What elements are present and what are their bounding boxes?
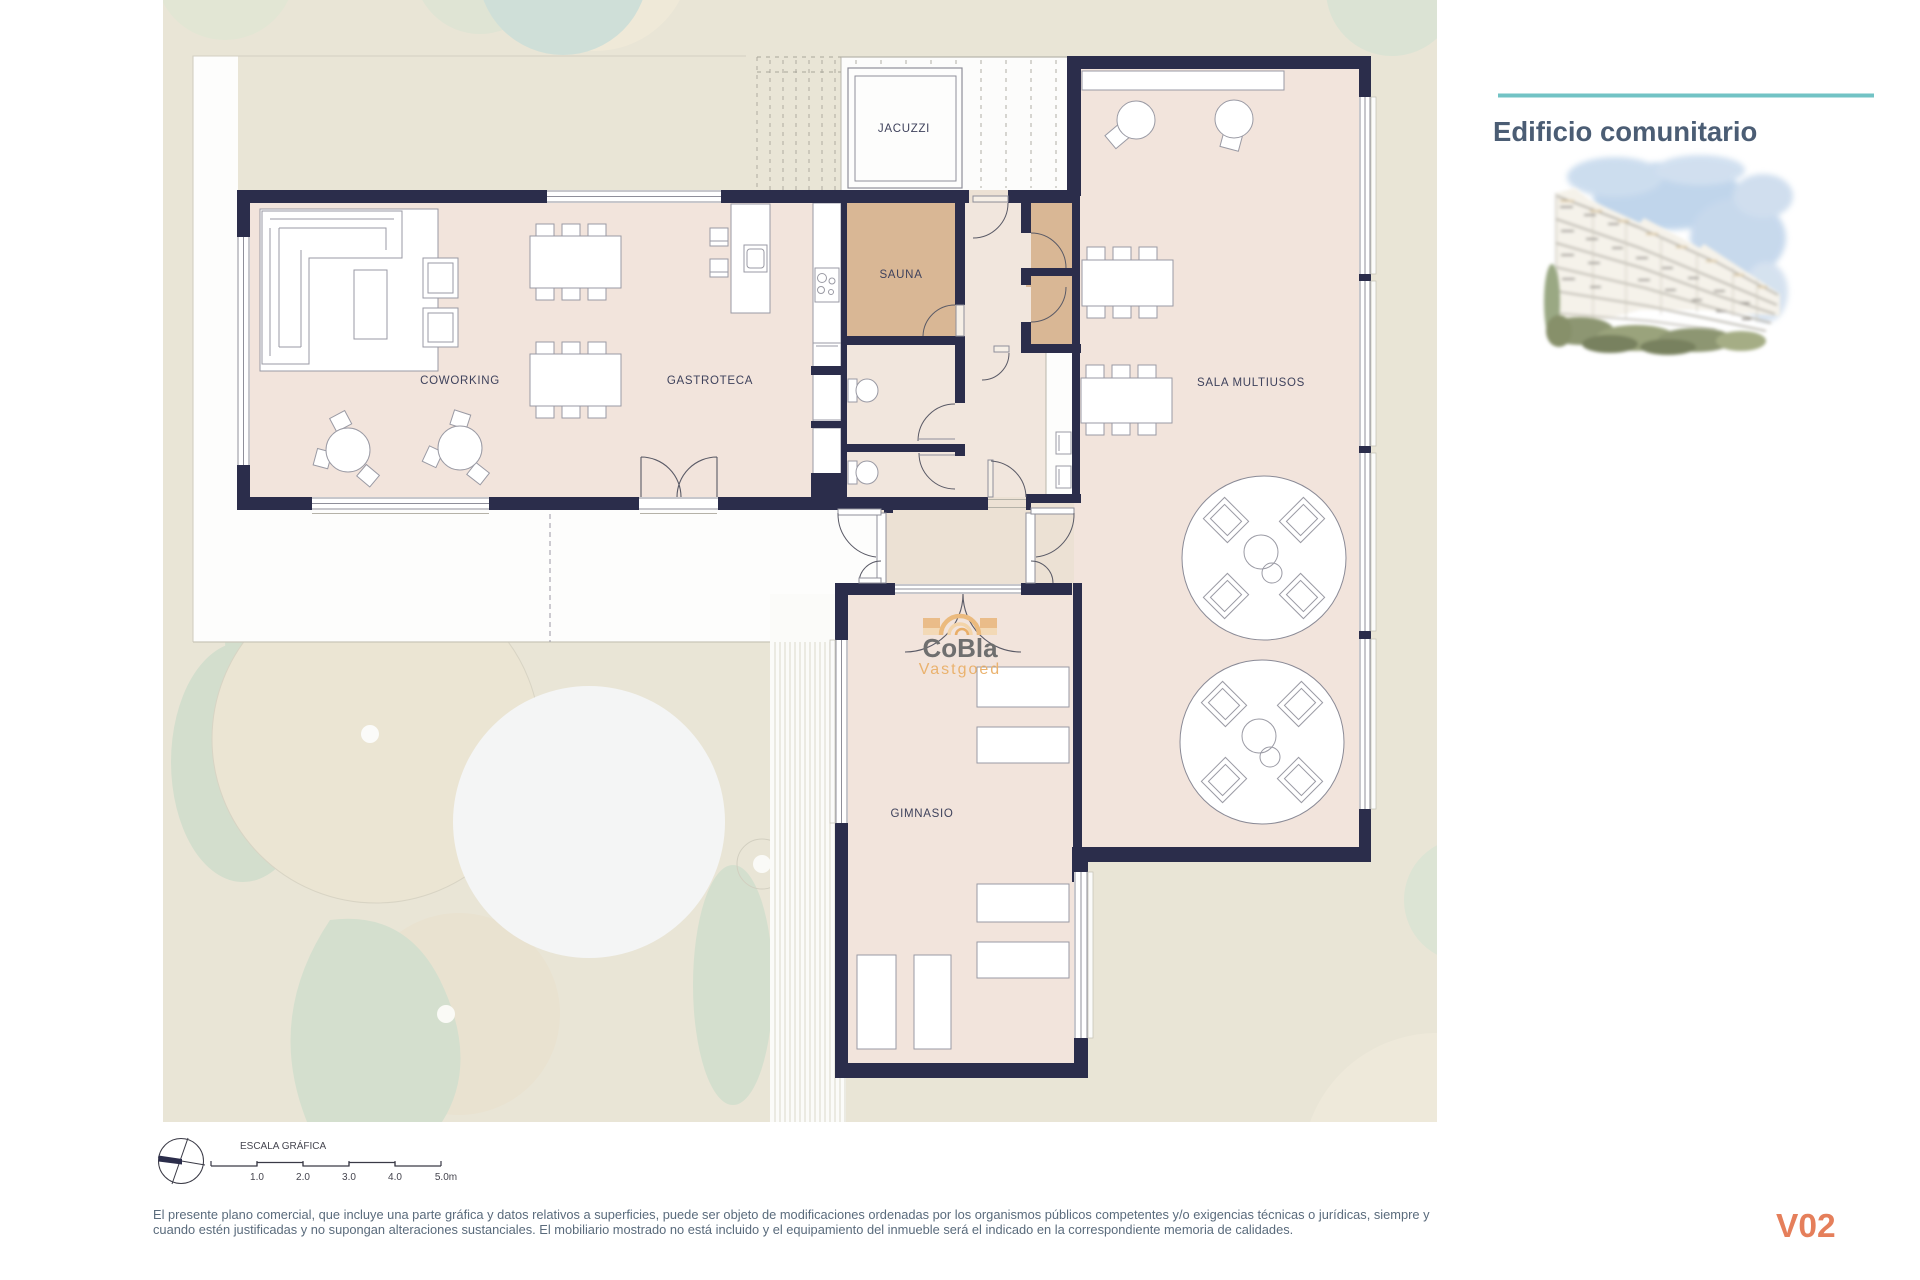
svg-text:Edificio comunitario: Edificio comunitario xyxy=(1493,116,1757,147)
svg-text:5.0m: 5.0m xyxy=(435,1172,457,1183)
svg-text:3.0: 3.0 xyxy=(342,1172,356,1183)
svg-text:COWORKING: COWORKING xyxy=(420,375,500,387)
svg-text:4.0: 4.0 xyxy=(388,1172,402,1183)
svg-text:ESCALA GRÁFICA: ESCALA GRÁFICA xyxy=(240,1139,326,1152)
svg-text:V02: V02 xyxy=(1776,1208,1836,1245)
svg-text:El presente plano comercial, q: El presente plano comercial, que incluye… xyxy=(153,1207,1430,1222)
svg-text:SAUNA: SAUNA xyxy=(879,269,922,281)
svg-text:cuando estén justificadas y no: cuando estén justificadas y no supongan … xyxy=(153,1222,1293,1237)
svg-text:1.0: 1.0 xyxy=(250,1172,264,1183)
svg-text:CoBla: CoBla xyxy=(922,633,998,663)
svg-text:2.0: 2.0 xyxy=(296,1172,310,1183)
svg-text:GASTROTECA: GASTROTECA xyxy=(667,375,753,387)
svg-text:JACUZZI: JACUZZI xyxy=(878,123,930,135)
svg-text:GIMNASIO: GIMNASIO xyxy=(890,808,953,820)
svg-text:SALA MULTIUSOS: SALA MULTIUSOS xyxy=(1197,377,1305,389)
svg-text:Vastgoed: Vastgoed xyxy=(919,661,1001,678)
